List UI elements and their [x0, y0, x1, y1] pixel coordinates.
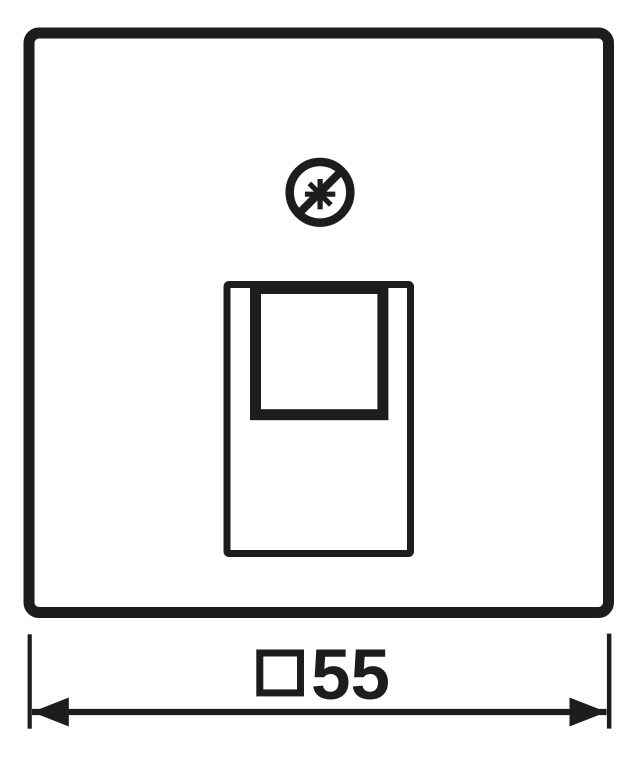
svg-text:55: 55 — [311, 636, 390, 715]
